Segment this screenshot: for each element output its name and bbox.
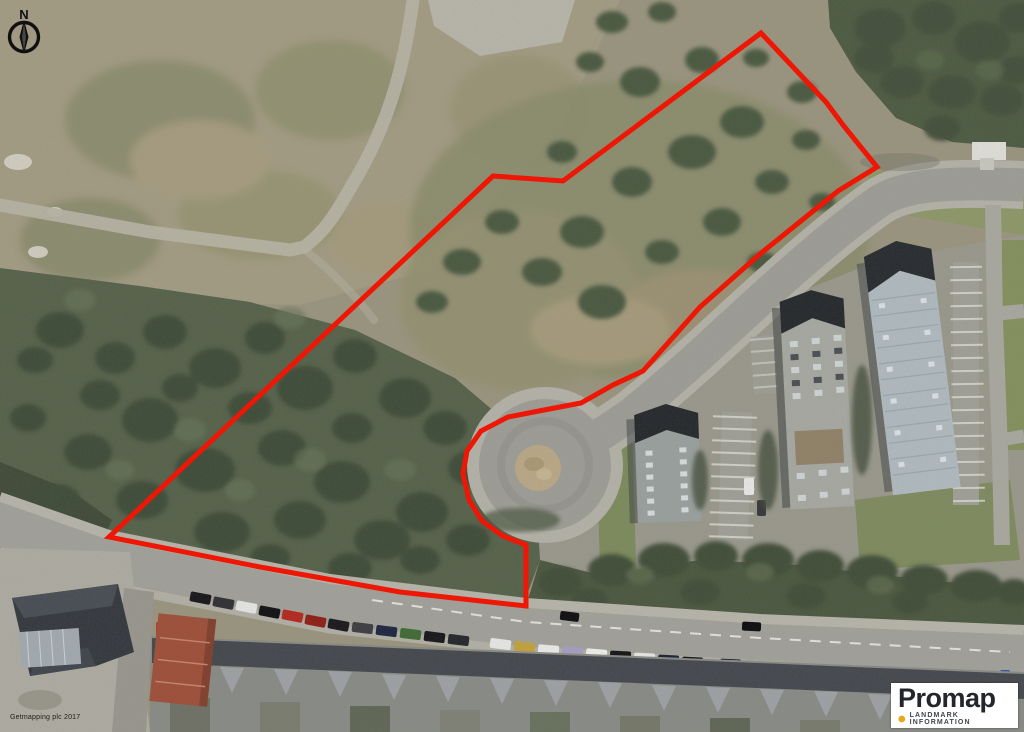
north-arrow: N [3,6,47,56]
north-label: N [19,7,28,22]
promap-logo: Promap LANDMARK INFORMATION [891,683,1018,728]
map-canvas[interactable]: N Getmapping plc 2017 Promap LANDMARK IN… [0,0,1024,732]
landmark-dot-icon [898,715,906,723]
aerial-photo [0,0,1024,732]
promap-brand-text: Promap [898,684,1018,713]
promap-tagline-text: LANDMARK INFORMATION [910,712,1018,726]
attribution-text: Getmapping plc 2017 [10,714,80,721]
